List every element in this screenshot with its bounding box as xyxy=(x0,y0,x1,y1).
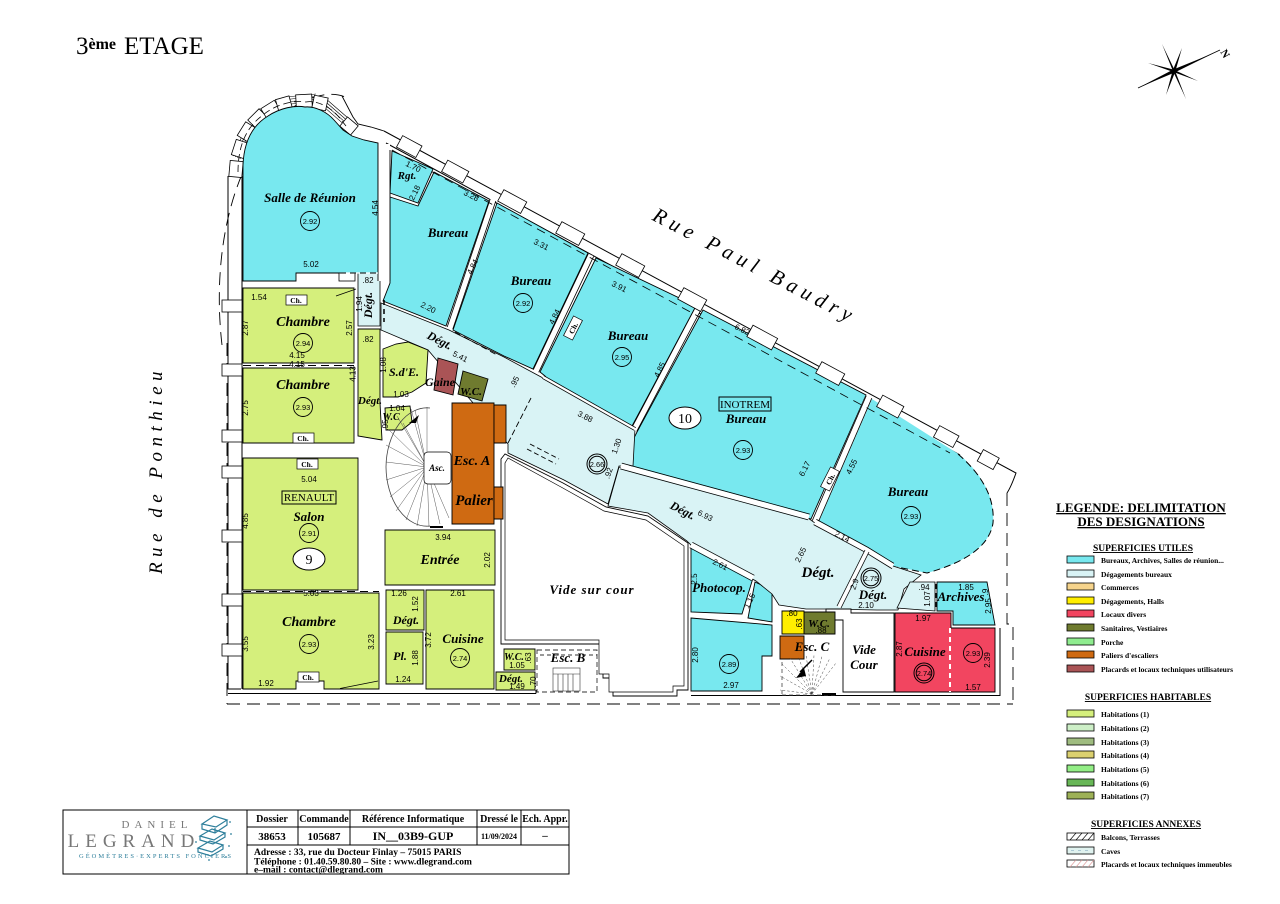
svg-text:1.04: 1.04 xyxy=(389,404,405,413)
svg-text:Palier: Palier xyxy=(455,493,493,509)
svg-text:.63: .63 xyxy=(795,618,804,630)
svg-text:9: 9 xyxy=(306,553,313,568)
svg-text:Habitations (1): Habitations (1) xyxy=(1101,710,1150,719)
svg-text:2.74: 2.74 xyxy=(453,654,468,663)
svg-text:LEGRAND: LEGRAND xyxy=(68,831,201,852)
svg-text:Vide sur cour: Vide sur cour xyxy=(549,582,634,597)
svg-text:2.93: 2.93 xyxy=(302,640,317,649)
svg-text:Bureau: Bureau xyxy=(725,411,766,426)
svg-text:4.85: 4.85 xyxy=(241,513,250,529)
svg-text:2.02: 2.02 xyxy=(483,552,492,568)
svg-text:4.13: 4.13 xyxy=(349,366,358,382)
svg-text:2.10: 2.10 xyxy=(858,601,874,610)
svg-text:2.92: 2.92 xyxy=(303,217,318,226)
svg-text:2.93: 2.93 xyxy=(904,512,919,521)
svg-text:Ch.: Ch. xyxy=(297,434,309,443)
svg-text:Habitations (6): Habitations (6) xyxy=(1101,779,1150,788)
svg-text:Habitations (7): Habitations (7) xyxy=(1101,792,1150,801)
svg-text:SUPERFICIES UTILES: SUPERFICIES UTILES xyxy=(1093,544,1193,554)
svg-text:1.05: 1.05 xyxy=(509,661,525,670)
svg-text:Cour: Cour xyxy=(850,657,878,672)
svg-text:Placards et locaux techniques: Placards et locaux techniques utilisateu… xyxy=(1101,665,1233,674)
svg-text:Dégt.: Dégt. xyxy=(858,587,888,602)
svg-text:2.95: 2.95 xyxy=(615,353,630,362)
svg-text:Gaine: Gaine xyxy=(425,375,456,389)
svg-text:1.03: 1.03 xyxy=(393,390,409,399)
svg-text:.63: .63 xyxy=(524,652,533,664)
svg-text:Dégagements, Halls: Dégagements, Halls xyxy=(1101,597,1164,606)
svg-text:INOTREM: INOTREM xyxy=(720,399,770,411)
svg-text:Habitations (3): Habitations (3) xyxy=(1101,738,1150,747)
svg-text:4.54: 4.54 xyxy=(371,200,380,216)
svg-text:Cuisine: Cuisine xyxy=(442,631,483,646)
svg-text:Rue de Ponthieu: Rue de Ponthieu xyxy=(146,366,167,575)
svg-text:Dégt.: Dégt. xyxy=(392,613,419,627)
svg-text:5.03: 5.03 xyxy=(303,589,319,598)
svg-text:5.04: 5.04 xyxy=(301,475,317,484)
svg-text:Photocop.: Photocop. xyxy=(692,580,746,595)
svg-text:SUPERFICIES ANNEXES: SUPERFICIES ANNEXES xyxy=(1091,820,1201,830)
svg-text:Esc. B: Esc. B xyxy=(550,650,586,665)
svg-text:Dossier: Dossier xyxy=(256,814,288,825)
svg-text:Habitations (2): Habitations (2) xyxy=(1101,724,1150,733)
svg-text:10: 10 xyxy=(678,412,692,427)
svg-text:DES DESIGNATIONS: DES DESIGNATIONS xyxy=(1077,514,1204,529)
svg-text:Habitations (5): Habitations (5) xyxy=(1101,765,1150,774)
svg-text:1.07: 1.07 xyxy=(923,591,932,607)
svg-text:Bureaux, Archives, Salles de r: Bureaux, Archives, Salles de réunion... xyxy=(1101,556,1224,565)
svg-text:DANIEL: DANIEL xyxy=(122,819,193,831)
svg-text:2.75: 2.75 xyxy=(241,400,250,416)
svg-text:.9: .9 xyxy=(981,588,990,595)
svg-text:Paliers d'escaliers: Paliers d'escaliers xyxy=(1101,651,1158,660)
svg-text:Chambre: Chambre xyxy=(276,378,330,393)
svg-text:1.85: 1.85 xyxy=(958,583,974,592)
svg-text:1.54: 1.54 xyxy=(251,293,267,302)
svg-text:Ch.: Ch. xyxy=(302,673,314,682)
svg-text:LEGENDE: DELIMITATION: LEGENDE: DELIMITATION xyxy=(1056,500,1226,515)
svg-text:.88: .88 xyxy=(815,626,827,635)
svg-text:3.94: 3.94 xyxy=(435,533,451,542)
svg-text:Ch.: Ch. xyxy=(301,460,313,469)
svg-text:1.88: 1.88 xyxy=(411,650,420,666)
svg-text:.94: .94 xyxy=(918,583,930,592)
svg-text:3.23: 3.23 xyxy=(367,634,376,650)
svg-text:Ech. Appr.: Ech. Appr. xyxy=(522,814,568,825)
svg-text:Dégt.: Dégt. xyxy=(357,395,382,407)
svg-text:2.39: 2.39 xyxy=(983,652,992,668)
svg-text:Entrée: Entrée xyxy=(420,553,460,568)
svg-text:Vide: Vide xyxy=(852,642,876,657)
svg-text:–: – xyxy=(541,830,548,842)
svg-text:Habitations (4): Habitations (4) xyxy=(1101,751,1150,760)
svg-text:105687: 105687 xyxy=(308,831,342,843)
svg-text:2.93: 2.93 xyxy=(966,649,981,658)
svg-text:.82: .82 xyxy=(362,276,374,285)
svg-text:W.C.: W.C. xyxy=(460,386,482,398)
svg-text:Dégt.: Dégt. xyxy=(801,565,835,581)
svg-text:Esc. C: Esc. C xyxy=(794,639,830,654)
svg-text:Dégagements bureaux: Dégagements bureaux xyxy=(1101,570,1172,579)
svg-text:Placards et locaux techniques: Placards et locaux techniques immeubles xyxy=(1101,860,1232,869)
svg-text:1.49: 1.49 xyxy=(509,682,525,691)
svg-text:2.91: 2.91 xyxy=(302,529,317,538)
svg-text:38653: 38653 xyxy=(258,831,286,843)
svg-text:Locaux divers: Locaux divers xyxy=(1101,610,1146,619)
svg-text:2.89: 2.89 xyxy=(722,660,737,669)
svg-text:1.57: 1.57 xyxy=(965,683,981,692)
svg-text:2.80: 2.80 xyxy=(691,647,700,663)
svg-text:S.d'E.: S.d'E. xyxy=(389,365,419,379)
svg-text:2.95: 2.95 xyxy=(984,598,993,614)
svg-text:Salon: Salon xyxy=(293,509,324,524)
svg-text:.82: .82 xyxy=(362,335,374,344)
svg-text:Asc.: Asc. xyxy=(428,463,445,473)
svg-text:Commande: Commande xyxy=(299,814,349,825)
svg-text:Bureau: Bureau xyxy=(607,328,648,343)
svg-text:Chambre: Chambre xyxy=(282,615,336,630)
svg-text:Caves: Caves xyxy=(1101,847,1120,856)
svg-text:1.24: 1.24 xyxy=(395,675,411,684)
svg-text:Référence Informatique: Référence Informatique xyxy=(362,814,465,825)
svg-text:Cuisine: Cuisine xyxy=(904,644,945,659)
svg-text:Ch.: Ch. xyxy=(290,296,302,305)
svg-text:Pl.: Pl. xyxy=(393,649,407,663)
svg-text:11/09/2024: 11/09/2024 xyxy=(481,832,517,841)
svg-text:Bureau: Bureau xyxy=(427,225,468,240)
svg-text:SUPERFICIES HABITABLES: SUPERFICIES HABITABLES xyxy=(1085,693,1211,703)
svg-text:2.66: 2.66 xyxy=(590,460,605,469)
svg-text:4.15: 4.15 xyxy=(289,360,305,369)
svg-text:RENAULT: RENAULT xyxy=(284,492,335,504)
svg-text:2.75: 2.75 xyxy=(864,574,879,583)
svg-text:3.72: 3.72 xyxy=(424,632,433,648)
svg-text:Porche: Porche xyxy=(1101,638,1124,647)
svg-text:Sanitaires, Vestiaires: Sanitaires, Vestiaires xyxy=(1101,624,1167,633)
svg-text:2.57: 2.57 xyxy=(345,320,354,336)
svg-text:Dégt.: Dégt. xyxy=(361,292,375,319)
svg-text:2.92: 2.92 xyxy=(516,299,531,308)
svg-text:Adresse : 33, rue du Doct: Adresse : 33, rue du Docteur Finlay – 75… xyxy=(254,848,461,858)
svg-text:Dressé le: Dressé le xyxy=(480,814,518,825)
svg-text:Esc. A: Esc. A xyxy=(453,454,491,469)
svg-text:e–mail : contact@dlegrand.co: e–mail : contact@dlegrand.com xyxy=(254,866,383,876)
svg-text:2.94: 2.94 xyxy=(296,339,311,348)
svg-text:1.52: 1.52 xyxy=(411,596,420,612)
svg-text:1.92: 1.92 xyxy=(258,679,274,688)
svg-text:.95: .95 xyxy=(381,419,390,431)
svg-text:Salle de Réunion: Salle de Réunion xyxy=(264,190,356,205)
svg-text:5.02: 5.02 xyxy=(303,260,319,269)
svg-text:4.15: 4.15 xyxy=(289,351,305,360)
svg-text:Chambre: Chambre xyxy=(276,315,330,330)
svg-text:2.97: 2.97 xyxy=(723,681,739,690)
svg-text:Balcons, Terrasses: Balcons, Terrasses xyxy=(1101,833,1160,842)
svg-text:Bureau: Bureau xyxy=(510,273,551,288)
svg-text:.80: .80 xyxy=(786,609,798,618)
svg-text:2.87: 2.87 xyxy=(241,320,250,336)
svg-text:2.61: 2.61 xyxy=(450,589,466,598)
svg-text:1.97: 1.97 xyxy=(915,614,931,623)
svg-text:IN__03B9-GUP: IN__03B9-GUP xyxy=(373,829,454,843)
svg-text:1.08: 1.08 xyxy=(379,357,388,373)
svg-text:Commerces: Commerces xyxy=(1101,583,1139,592)
svg-text:1.26: 1.26 xyxy=(391,589,407,598)
svg-text:2.87: 2.87 xyxy=(895,641,904,657)
svg-text:2.93: 2.93 xyxy=(296,403,311,412)
svg-text:Bureau: Bureau xyxy=(887,484,928,499)
svg-text:2.93: 2.93 xyxy=(736,446,751,455)
svg-text:2.74: 2.74 xyxy=(917,669,932,678)
